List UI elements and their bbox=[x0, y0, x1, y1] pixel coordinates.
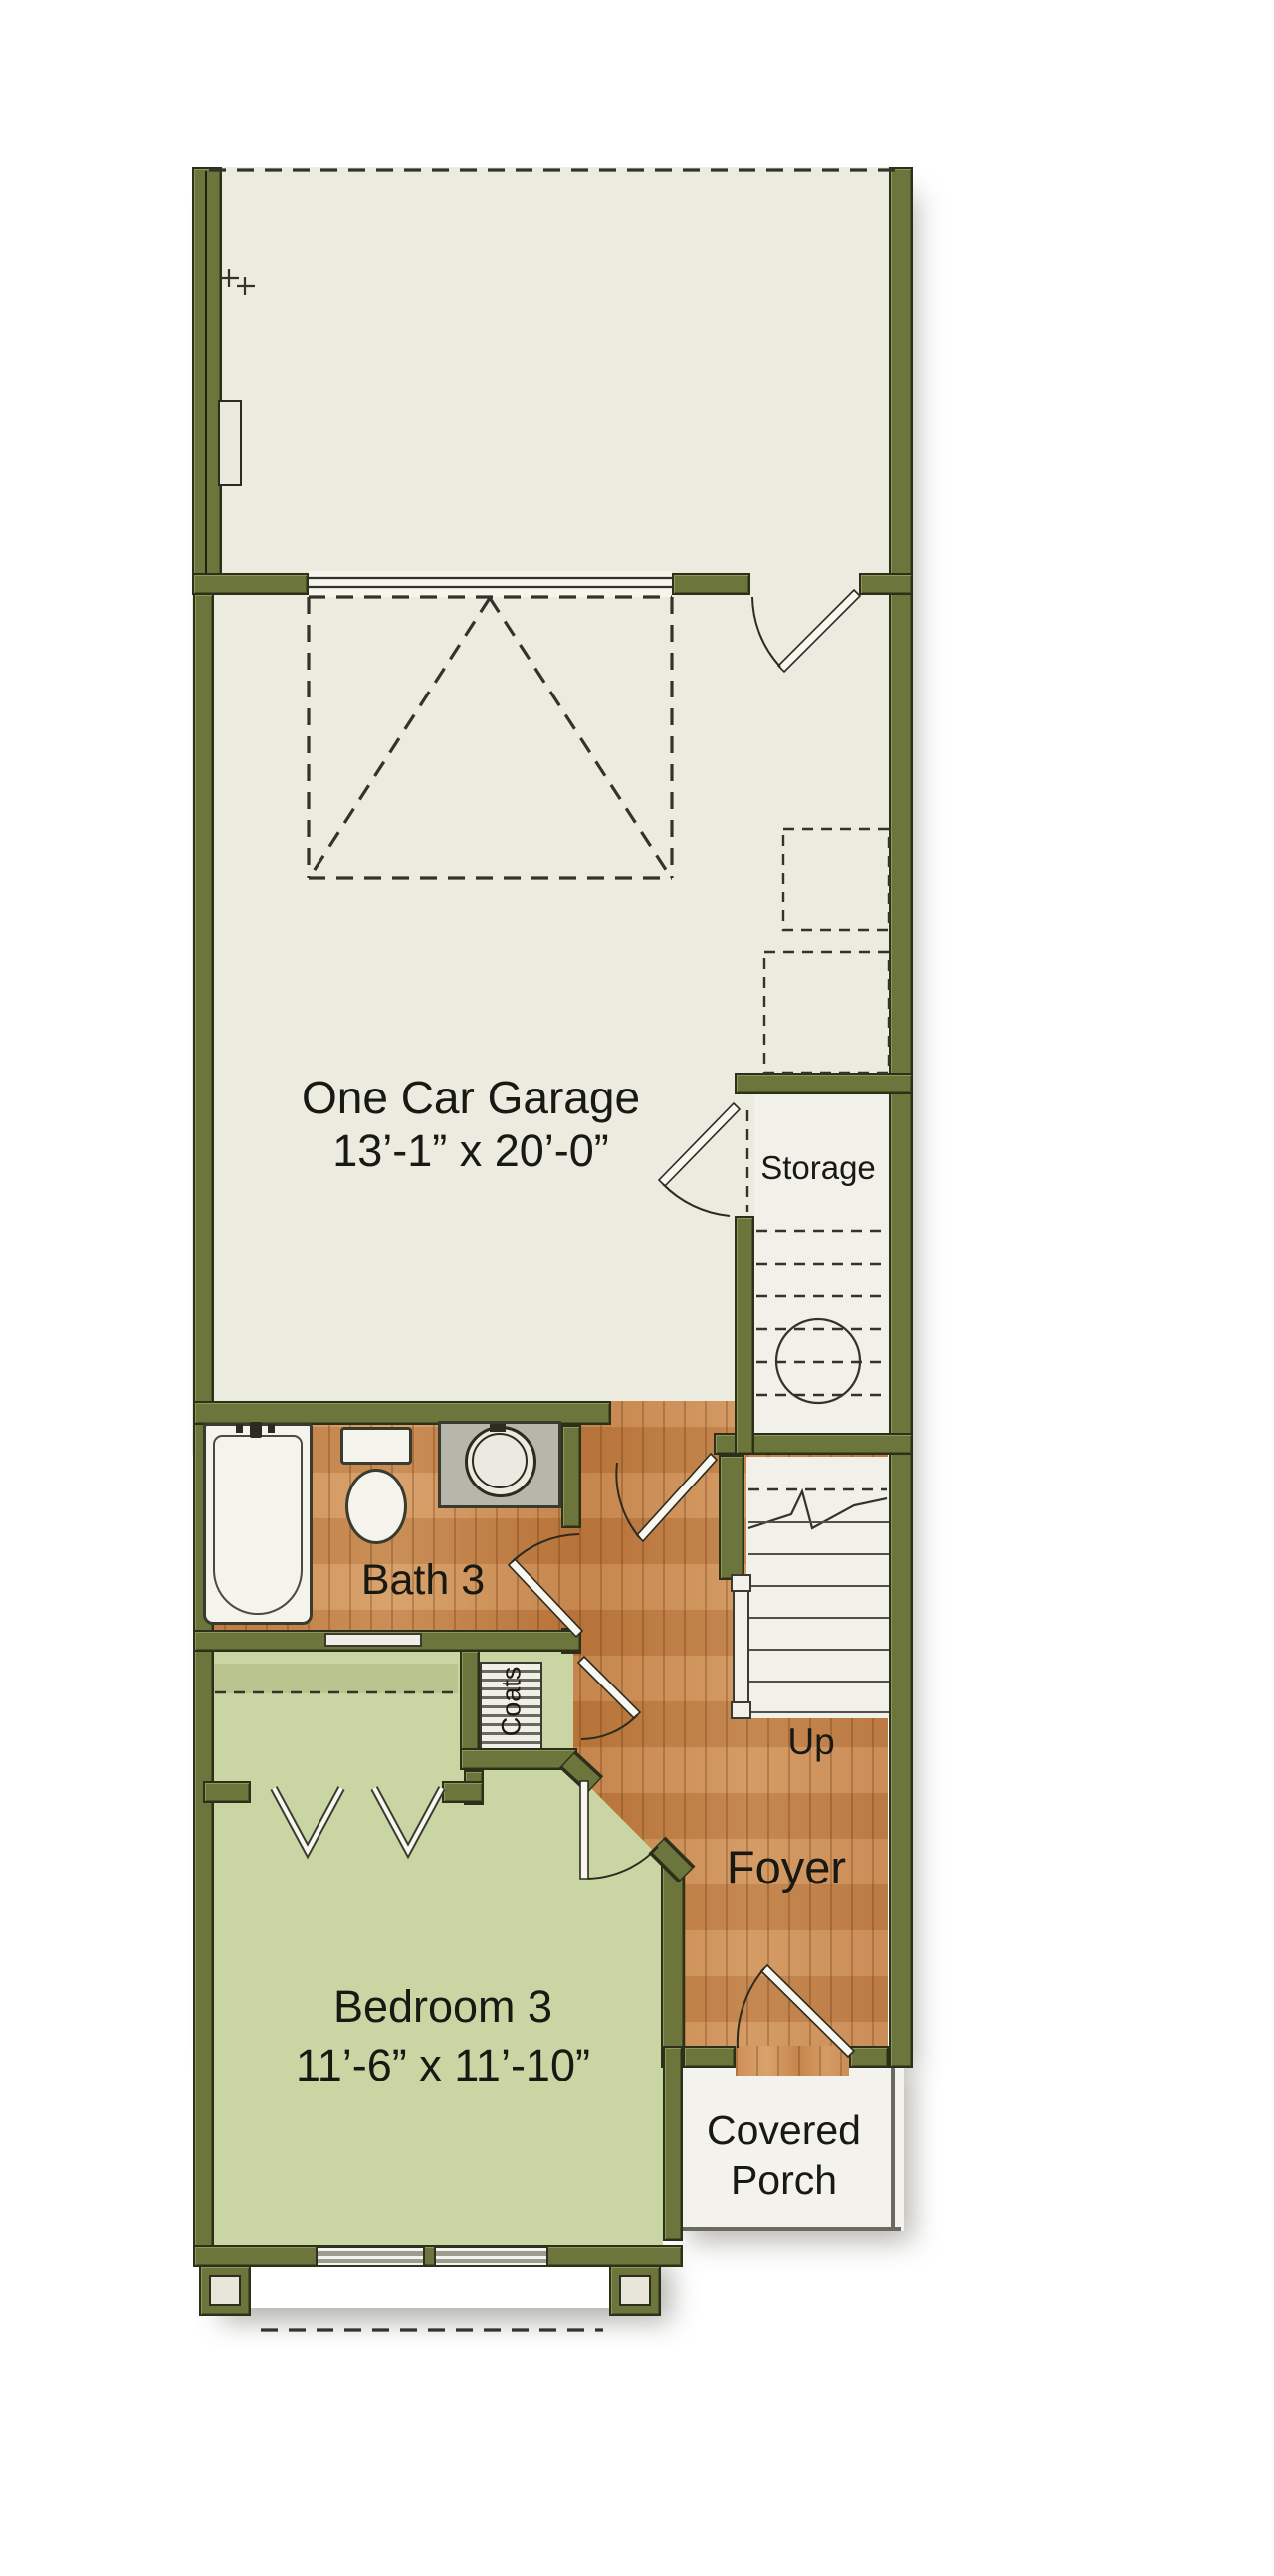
storage-door-arc bbox=[663, 1184, 730, 1216]
coats-door-leaf bbox=[578, 1657, 640, 1718]
entry-door-leaf bbox=[778, 590, 860, 672]
bedroom-name: Bedroom 3 bbox=[219, 1978, 667, 2037]
wall-diagonal-lower bbox=[658, 1846, 686, 1874]
stairs-newel-top bbox=[732, 1575, 750, 1591]
stairs-railing bbox=[734, 1577, 748, 1718]
bedroom-door-leaf bbox=[580, 1781, 588, 1879]
garage-name: One Car Garage bbox=[222, 1071, 720, 1124]
front-door-leaf bbox=[761, 1965, 854, 2057]
bifold-doors-outline bbox=[274, 1788, 442, 1851]
stairs-treads bbox=[748, 1522, 889, 1712]
bedroom-door-arc bbox=[588, 1847, 658, 1879]
linework-overlay bbox=[0, 0, 1274, 2576]
floor-plan-canvas: One Car Garage 13’-1” x 20’-0” Storage B… bbox=[0, 0, 1274, 2576]
bath-name: Bath 3 bbox=[323, 1555, 523, 1606]
garage-door-dashed-rect bbox=[309, 597, 672, 878]
stairs-newel-bottom bbox=[732, 1702, 750, 1718]
bedroom-dimensions: 11’-6” x 11’-10” bbox=[219, 2037, 667, 2095]
porch-name-line2: Porch bbox=[677, 2155, 891, 2205]
garage-dimensions: 13’-1” x 20’-0” bbox=[222, 1124, 720, 1177]
equipment-dashed-square-2 bbox=[764, 952, 889, 1073]
stairs-up-label: Up bbox=[771, 1720, 851, 1764]
porch-name-line1: Covered bbox=[677, 2105, 891, 2155]
bedroom-label-group: Bedroom 3 11’-6” x 11’-10” bbox=[219, 1978, 667, 2094]
coats-door-arc bbox=[581, 1715, 637, 1739]
foyer-name: Foyer bbox=[697, 1840, 876, 1894]
entry-door-arc bbox=[752, 597, 780, 667]
garage-foyer-door-leaf bbox=[637, 1454, 717, 1541]
front-door-arc bbox=[738, 1968, 764, 2048]
garage-door-dashed-triangle bbox=[311, 598, 670, 876]
storage-dashed-treads bbox=[756, 1231, 886, 1395]
coats-name: Coats bbox=[496, 1667, 528, 1737]
porch-label-group: Covered Porch bbox=[677, 2105, 891, 2205]
garage-foyer-door-arc bbox=[616, 1463, 640, 1538]
coats-label-box: Coats bbox=[464, 1647, 559, 1756]
equipment-dashed-square-1 bbox=[783, 829, 889, 930]
outlet-plus-icon bbox=[221, 269, 255, 295]
garage-label-group: One Car Garage 13’-1” x 20’-0” bbox=[222, 1071, 720, 1177]
storage-name: Storage bbox=[739, 1149, 898, 1188]
